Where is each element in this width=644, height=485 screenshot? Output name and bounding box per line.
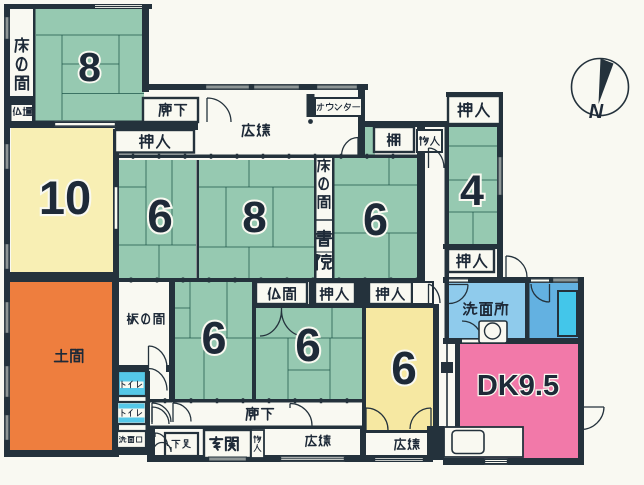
svg-text:8: 8 <box>78 44 101 90</box>
svg-text:6: 6 <box>295 319 321 371</box>
svg-text:6: 6 <box>147 190 173 242</box>
svg-text:DK9.5: DK9.5 <box>477 370 559 402</box>
svg-text:6: 6 <box>391 342 417 394</box>
svg-text:6: 6 <box>363 194 388 245</box>
svg-text:4: 4 <box>460 167 484 215</box>
svg-text:6: 6 <box>201 313 226 364</box>
svg-text:8: 8 <box>242 193 266 242</box>
svg-text:10: 10 <box>39 171 91 224</box>
svg-text:N: N <box>589 101 604 123</box>
